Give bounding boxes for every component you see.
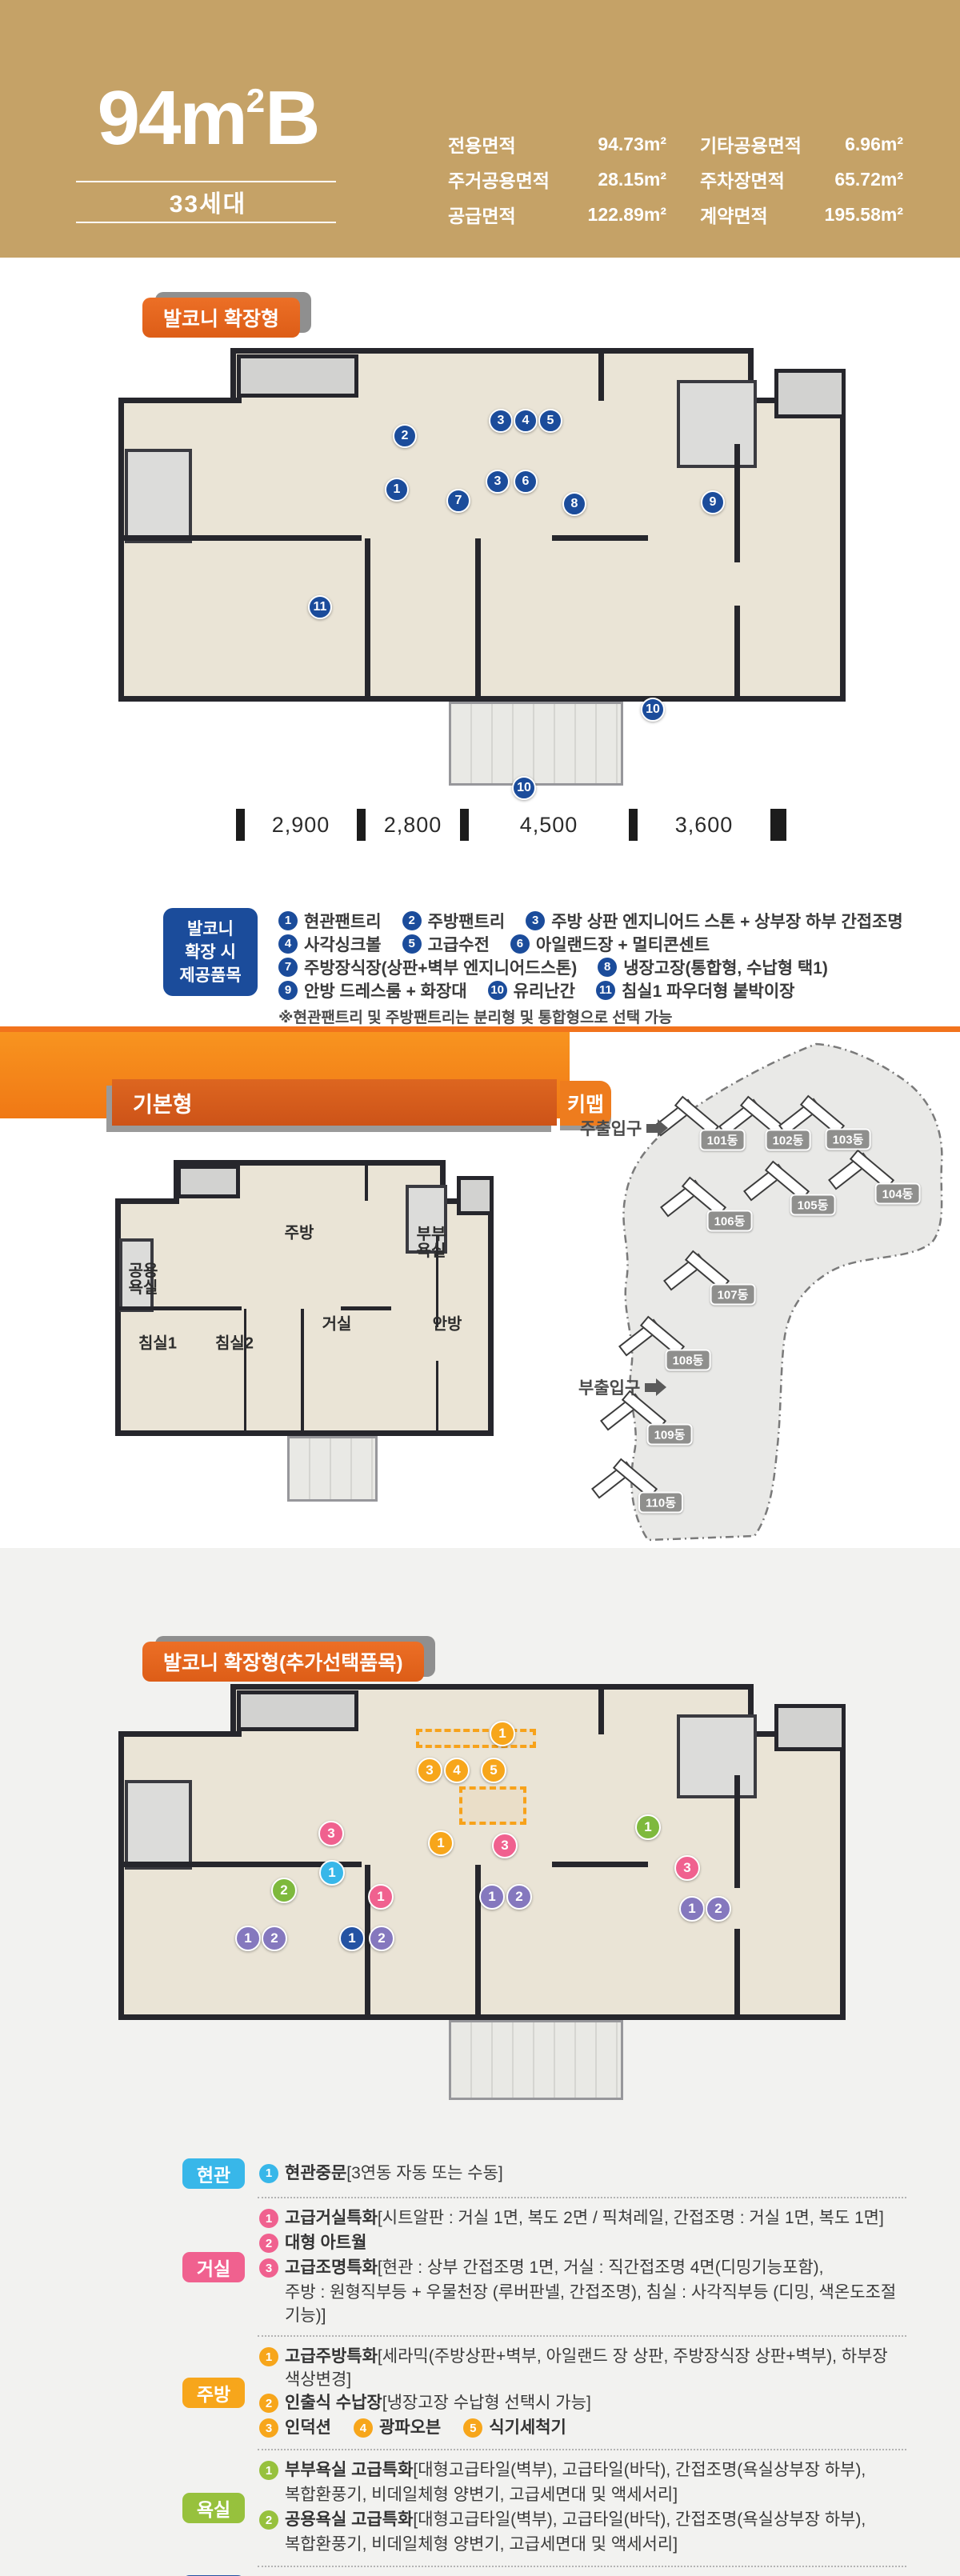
dimension-tick xyxy=(357,809,366,841)
legend-row: 2공용욕실 고급특화[대형고급타일(벽부), 고급타일(바닥), 간접조명(욕실… xyxy=(259,2508,906,2533)
legend-item-text: 부부욕실 고급특화[대형고급타일(벽부), 고급타일(바닥), 간접조명(욕실상… xyxy=(285,2458,866,2482)
provision-number-badge: 10 xyxy=(488,981,507,1000)
sub-entrance-label: 부출입구 xyxy=(578,1375,666,1399)
area-label: 주거공용면적 xyxy=(448,166,566,193)
entrance-arrow-icon xyxy=(646,1124,658,1133)
plan-wall xyxy=(475,538,481,697)
room-label-master: 안방 xyxy=(433,1317,462,1334)
area-value: 28.15m² xyxy=(566,169,666,190)
plan-option-marker: 1 xyxy=(679,1896,705,1922)
plan-wall xyxy=(365,538,370,697)
plan-marker: 10 xyxy=(641,698,665,722)
plan-master-bath xyxy=(677,1714,757,1798)
legend-category-pill: 현관 xyxy=(182,2158,245,2189)
legend-item: 2대형 아트월 xyxy=(259,2231,366,2254)
legend-row: 2인출식 수납장[냉장고장 수납형 선택시 가능] xyxy=(259,2391,906,2416)
plan-option-marker: 1 xyxy=(319,1860,345,1886)
provision-item: 2주방팬트리 xyxy=(402,909,506,933)
plan-marker: 4 xyxy=(514,409,538,433)
area-value: 195.58m² xyxy=(814,204,903,226)
plan-option-marker: 2 xyxy=(706,1896,731,1922)
legend-category: 거실 xyxy=(182,2252,259,2282)
provision-number-badge: 9 xyxy=(278,981,298,1000)
plan-marker: 2 xyxy=(393,424,417,448)
provision-number-badge: 2 xyxy=(402,911,422,930)
legend-category: 욕실 xyxy=(182,2493,259,2523)
provision-item-text: 사각싱크볼 xyxy=(304,932,382,956)
plan-wall xyxy=(734,606,740,697)
plan-wall xyxy=(734,444,740,562)
floorplan-optional: 13451312131213121212 xyxy=(104,1684,860,2112)
legend-row: 2대형 아트월 xyxy=(259,2231,906,2256)
legend-separator xyxy=(258,2566,906,2567)
dimension-row: 2,9002,8004,5003,600 xyxy=(236,806,786,843)
plan-wall xyxy=(301,1309,304,1432)
provision-number-badge: 5 xyxy=(402,934,422,954)
title-superscript: 2 xyxy=(246,82,265,119)
plan-wall xyxy=(734,1929,740,2015)
plan-option-marker: 1 xyxy=(635,1814,661,1840)
legend-rows: 1부부욕실 고급특화[대형고급타일(벽부), 고급타일(바닥), 간접조명(욕실… xyxy=(259,2458,906,2558)
provision-note: ※현관팬트리 및 주방팬트리는 분리형 및 통합형으로 선택 가능 xyxy=(278,1006,902,1027)
floorplan-extended: 2345136789111010 xyxy=(104,348,860,796)
building-number-badge: 108동 xyxy=(666,1350,711,1371)
tag-label: 발코니 확장형(추가선택품목) xyxy=(142,1642,424,1682)
basic-tag-label: 기본형 xyxy=(133,1087,193,1118)
provision-item-text: 주방팬트리 xyxy=(428,909,506,933)
provision-item-text: 유리난간 xyxy=(514,978,575,1002)
plan-option-marker: 2 xyxy=(262,1926,287,1951)
legend-category: 현관 xyxy=(182,2158,259,2189)
legend-item-text: 고급거실특화[시트알판 : 거실 1면, 복도 2면 / 픽쳐레일, 간접조명 … xyxy=(285,2206,884,2230)
legend-item-text: 광파오븐 xyxy=(379,2416,441,2439)
plan-wall xyxy=(552,535,648,541)
legend-category-pill: 거실 xyxy=(182,2252,245,2282)
tag-basic-type: 기본형 xyxy=(112,1079,557,1126)
legend-item-text: 공용욕실 고급특화[대형고급타일(벽부), 고급타일(바닥), 간접조명(욕실상… xyxy=(285,2508,866,2531)
provision-item: 8냉장고장(통합형, 수납형 택1) xyxy=(598,955,828,979)
area-value: 6.96m² xyxy=(814,134,903,155)
legend-continuation-text: 복합환풍기, 비데일체형 양변기, 고급세면대 및 액세서리] xyxy=(285,2483,678,2506)
provision-number-badge: 6 xyxy=(510,934,530,954)
dimension-value: 2,900 xyxy=(245,813,357,838)
room-label-living: 거실 xyxy=(322,1317,352,1334)
room-label-master-bath: 부부 욕실 xyxy=(417,1226,446,1260)
dimension-value: 2,800 xyxy=(366,813,460,838)
legend-row: 주방 : 원형직부등 + 우물천장 (루버판넬, 간접조명), 침실 : 사각직… xyxy=(259,2281,906,2327)
plan-wall xyxy=(365,1162,368,1201)
plan-wall xyxy=(123,535,362,541)
legend-item: 3인덕션 xyxy=(259,2416,331,2439)
plan-option-marker: 3 xyxy=(318,1821,344,1846)
area-value: 65.72m² xyxy=(814,169,903,190)
legend-row: 복합환풍기, 비데일체형 양변기, 고급세면대 및 액세서리] xyxy=(259,2533,906,2558)
area-table: 전용면적94.73m²기타공용면적6.96m²주거공용면적28.15m²주차장면… xyxy=(448,126,903,232)
provision-title-box: 발코니 확장 시 제공품목 xyxy=(163,908,258,996)
plan-wall xyxy=(341,1306,390,1310)
provision-item-text: 안방 드레스룸 + 화장대 xyxy=(304,978,467,1002)
building-number-badge: 106동 xyxy=(707,1210,753,1232)
option-legend: 현관1현관중문[3연동 자동 또는 수동]거실1고급거실특화[시트알판 : 거실… xyxy=(182,2154,906,2576)
legend-item: 5식기세척기 xyxy=(463,2416,566,2439)
provision-number-badge: 8 xyxy=(598,958,617,977)
provision-row: 4사각싱크볼5고급수전6아일랜드장 + 멀티콘센트 xyxy=(278,932,902,955)
plan-wall xyxy=(598,1687,604,1734)
legend-rows: 1고급주방특화[세라믹(주방상판+벽부, 아일랜드 장 상판, 주방장식장 상판… xyxy=(259,2345,906,2441)
legend-number-badge: 1 xyxy=(259,2164,278,2183)
legend-row: 3인덕션4광파오븐5식기세척기 xyxy=(259,2416,906,2441)
provision-row: 7주방장식장(상판+벽부 엔지니어드스톤)8냉장고장(통합형, 수납형 택1) xyxy=(278,955,902,978)
plan-stair-block xyxy=(237,354,358,398)
dimension-tick xyxy=(236,809,245,841)
legend-number-badge: 1 xyxy=(259,2461,278,2480)
plan-option-marker: 1 xyxy=(428,1830,454,1856)
provision-item-text: 고급수전 xyxy=(428,932,490,956)
provision-item: 7주방장식장(상판+벽부 엔지니어드스톤) xyxy=(278,955,577,979)
provision-row: 9안방 드레스룸 + 화장대10유리난간11침실1 파우더형 붙박이장 xyxy=(278,978,902,1002)
plan-option-marker: 5 xyxy=(481,1758,506,1783)
unit-type-title: 94m2B xyxy=(48,80,368,157)
kitchen-island-outline xyxy=(459,1786,526,1825)
plan-wall xyxy=(598,351,604,401)
legend-block-주방: 주방1고급주방특화[세라믹(주방상판+벽부, 아일랜드 장 상판, 주방장식장 … xyxy=(182,2340,906,2446)
legend-row: 복합환풍기, 비데일체형 양변기, 고급세면대 및 액세서리] xyxy=(259,2483,906,2508)
area-label: 주차장면적 xyxy=(700,166,814,193)
legend-number-badge: 2 xyxy=(259,2234,278,2253)
building-number-badge: 102동 xyxy=(766,1130,811,1151)
header-band: 94m2B 33세대 전용면적94.73m²기타공용면적6.96m²주거공용면적… xyxy=(0,0,960,258)
dimension-tick xyxy=(460,809,469,841)
legend-item-text: 대형 아트월 xyxy=(285,2231,366,2254)
provision-item: 4사각싱크볼 xyxy=(278,932,382,956)
provision-item-text: 주방장식장(상판+벽부 엔지니어드스톤) xyxy=(304,955,577,979)
room-label-kitchen: 주방 xyxy=(285,1226,314,1242)
legend-number-badge: 1 xyxy=(259,2347,278,2366)
building-number-badge: 103동 xyxy=(826,1129,871,1150)
provision-item-text: 현관팬트리 xyxy=(304,909,382,933)
provision-item: 10유리난간 xyxy=(488,978,575,1002)
provision-item: 3주방 상판 엔지니어드 스톤 + 상부장 하부 간접조명 xyxy=(526,909,903,933)
provision-item-text: 주방 상판 엔지니어드 스톤 + 상부장 하부 간접조명 xyxy=(551,909,903,933)
legend-item: 1현관중문[3연동 자동 또는 수동] xyxy=(259,2162,503,2185)
building-number-badge: 104동 xyxy=(875,1183,921,1205)
dimension-tick xyxy=(629,809,638,841)
plan-option-marker: 1 xyxy=(479,1884,505,1910)
room-label-bedroom1: 침실1 xyxy=(138,1336,177,1353)
area-label: 전용면적 xyxy=(448,130,566,158)
dimension-value: 3,600 xyxy=(638,813,770,838)
legend-number-badge: 2 xyxy=(259,2394,278,2413)
plan-stair-block xyxy=(177,1165,240,1198)
legend-block-침실: 침실1침실2 파우더형 붙박이장 xyxy=(182,2570,906,2576)
provision-item: 6아일랜드장 + 멀티콘센트 xyxy=(510,932,710,956)
legend-category: 주방 xyxy=(182,2378,259,2408)
legend-number-badge: 4 xyxy=(354,2418,373,2438)
legend-number-badge: 1 xyxy=(259,2209,278,2228)
legend-separator xyxy=(258,2335,906,2337)
plan-marker: 3 xyxy=(489,409,513,433)
building-number-badge: 109동 xyxy=(647,1424,693,1446)
plan-marker: 9 xyxy=(701,490,725,514)
household-count: 33세대 xyxy=(48,184,368,219)
plan-option-marker: 2 xyxy=(369,1926,394,1951)
legend-row: 1고급주방특화[세라믹(주방상판+벽부, 아일랜드 장 상판, 주방장식장 상판… xyxy=(259,2345,906,2391)
provision-number-badge: 1 xyxy=(278,911,298,930)
plan-utility-block xyxy=(774,369,846,418)
plan-master-bath xyxy=(677,380,757,468)
legend-number-badge: 2 xyxy=(259,2510,278,2530)
floorplan-basic: 주방 부부 욕실 공용 욕실 침실1 침실2 거실 안방 xyxy=(108,1160,502,1528)
tag-label: 발코니 확장형 xyxy=(142,298,300,338)
title-divider-bottom xyxy=(76,222,336,223)
legend-row: 3고급조명특화[현관 : 상부 간접조명 1면, 거실 : 직간접조명 4면(디… xyxy=(259,2256,906,2281)
provision-item-text: 냉장고장(통합형, 수납형 택1) xyxy=(623,955,828,979)
orange-rule xyxy=(0,1026,960,1032)
plan-option-marker: 3 xyxy=(674,1855,700,1881)
plan-wall xyxy=(118,1306,242,1310)
legend-item: 3고급조명특화[현관 : 상부 간접조명 1면, 거실 : 직간접조명 4면(디… xyxy=(259,2256,823,2279)
legend-block-현관: 현관1현관중문[3연동 자동 또는 수동] xyxy=(182,2154,906,2194)
area-value: 122.89m² xyxy=(566,204,666,226)
legend-number-badge: 5 xyxy=(463,2418,482,2438)
area-label: 기타공용면적 xyxy=(700,130,814,158)
provision-item-list: 1현관팬트리2주방팬트리3주방 상판 엔지니어드 스톤 + 상부장 하부 간접조… xyxy=(278,909,902,1027)
plan-marker: 3 xyxy=(486,470,510,494)
title-suffix: B xyxy=(265,75,318,161)
entrance-arrow-icon xyxy=(645,1383,657,1392)
tag-extended-optional: 발코니 확장형(추가선택품목) xyxy=(142,1642,424,1682)
plan-wall xyxy=(552,1862,648,1867)
plan-marker: 5 xyxy=(538,409,562,433)
plan-balcony xyxy=(287,1436,378,1502)
area-label: 계약면적 xyxy=(700,201,814,228)
plan-option-marker: 1 xyxy=(490,1721,515,1746)
provision-title-line: 확장 시 xyxy=(185,941,236,964)
legend-item: 2인출식 수납장[냉장고장 수납형 선택시 가능] xyxy=(259,2391,591,2414)
provision-item: 11침실1 파우더형 붙박이장 xyxy=(596,978,795,1002)
sub-entrance-text: 부출입구 xyxy=(578,1375,640,1399)
legend-row: 1현관중문[3연동 자동 또는 수동] xyxy=(259,2162,906,2186)
legend-item: 1고급주방특화[세라믹(주방상판+벽부, 아일랜드 장 상판, 주방장식장 상판… xyxy=(259,2345,906,2391)
provision-title-line: 발코니 xyxy=(187,918,234,941)
legend-item-text: 고급주방특화[세라믹(주방상판+벽부, 아일랜드 장 상판, 주방장식장 상판+… xyxy=(285,2345,906,2391)
plan-option-marker: 2 xyxy=(506,1884,532,1910)
provision-item: 5고급수전 xyxy=(402,932,490,956)
entrance-arrow-icon xyxy=(658,1119,668,1137)
plan-stair-block xyxy=(237,1690,358,1731)
plan-marker: 11 xyxy=(308,595,332,619)
dimension-tick-end xyxy=(770,809,786,841)
dimension-value: 4,500 xyxy=(469,813,629,838)
legend-item-text: 현관중문[3연동 자동 또는 수동] xyxy=(285,2162,503,2185)
plan-marker: 6 xyxy=(514,470,538,494)
site-keymap: 주출입구 부출입구 101동102동103동104동105동106동107동10… xyxy=(572,1036,960,1548)
legend-category-pill: 욕실 xyxy=(182,2493,245,2523)
plan-common-bath xyxy=(125,1780,192,1870)
title-divider-top xyxy=(76,181,336,182)
plan-marker: 8 xyxy=(562,492,586,516)
plan-utility-block xyxy=(774,1704,846,1751)
plan-common-bath xyxy=(125,449,192,543)
plan-wall xyxy=(244,1309,247,1432)
legend-row: 1고급거실특화[시트알판 : 거실 1면, 복도 2면 / 픽쳐레일, 간접조명… xyxy=(259,2206,906,2231)
building-number-badge: 105동 xyxy=(790,1194,836,1216)
main-entrance-label: 주출입구 xyxy=(580,1116,668,1140)
tag-extended-balcony: 발코니 확장형 xyxy=(142,298,300,338)
legend-block-욕실: 욕실1부부욕실 고급특화[대형고급타일(벽부), 고급타일(바닥), 간접조명(… xyxy=(182,2454,906,2562)
legend-continuation-text: 복합환풍기, 비데일체형 양변기, 고급세면대 및 액세서리] xyxy=(285,2533,678,2556)
provision-item-text: 침실1 파우더형 붙박이장 xyxy=(622,978,795,1002)
provision-item: 1현관팬트리 xyxy=(278,909,382,933)
plan-marker: 10 xyxy=(512,776,536,800)
legend-rows: 1고급거실특화[시트알판 : 거실 1면, 복도 2면 / 픽쳐레일, 간접조명… xyxy=(259,2206,906,2327)
plan-balcony xyxy=(449,2020,623,2100)
provision-row: 1현관팬트리2주방팬트리3주방 상판 엔지니어드 스톤 + 상부장 하부 간접조… xyxy=(278,909,902,932)
keymap-tag-label: 키맵 xyxy=(567,1089,604,1118)
provision-number-badge: 3 xyxy=(526,911,545,930)
provision-number-badge: 7 xyxy=(278,958,298,977)
legend-number-badge: 3 xyxy=(259,2418,278,2438)
entrance-arrow-icon xyxy=(656,1378,666,1396)
legend-continuation-text: 주방 : 원형직부등 + 우물천장 (루버판넬, 간접조명), 침실 : 사각직… xyxy=(285,2281,906,2327)
legend-item: 1고급거실특화[시트알판 : 거실 1면, 복도 2면 / 픽쳐레일, 간접조명… xyxy=(259,2206,884,2230)
plan-wall xyxy=(436,1361,439,1432)
provision-item: 9안방 드레스룸 + 화장대 xyxy=(278,978,467,1002)
kitchen-counter-outline xyxy=(416,1729,536,1748)
plan-option-marker: 1 xyxy=(368,1884,394,1910)
plan-marker: 7 xyxy=(446,489,470,513)
provision-item-text: 아일랜드장 + 멀티콘센트 xyxy=(536,932,710,956)
legend-rows: 1현관중문[3연동 자동 또는 수동] xyxy=(259,2162,906,2186)
provision-number-badge: 11 xyxy=(596,981,615,1000)
plan-option-marker: 2 xyxy=(271,1878,297,1903)
plan-option-marker: 1 xyxy=(339,1926,365,1951)
legend-category-pill: 주방 xyxy=(182,2378,245,2408)
legend-row: 1부부욕실 고급특화[대형고급타일(벽부), 고급타일(바닥), 간접조명(욕실… xyxy=(259,2458,906,2483)
plan-utility-block xyxy=(457,1176,494,1214)
plan-option-marker: 4 xyxy=(444,1758,470,1783)
legend-item: 2공용욕실 고급특화[대형고급타일(벽부), 고급타일(바닥), 간접조명(욕실… xyxy=(259,2508,866,2531)
building-number-badge: 110동 xyxy=(638,1492,683,1514)
plan-wall xyxy=(734,1775,740,1888)
plan-wall xyxy=(475,1865,481,2015)
plan-option-marker: 3 xyxy=(417,1758,442,1783)
legend-separator xyxy=(258,2449,906,2450)
main-entrance-text: 주출입구 xyxy=(580,1116,642,1140)
legend-block-거실: 거실1고급거실특화[시트알판 : 거실 1면, 복도 2면 / 픽쳐레일, 간접… xyxy=(182,2202,906,2332)
building-number-badge: 101동 xyxy=(700,1130,746,1151)
legend-number-badge: 3 xyxy=(259,2258,278,2278)
area-label: 공급면적 xyxy=(448,201,566,228)
legend-item-text: 식기세척기 xyxy=(489,2416,566,2439)
legend-item-text: 인출식 수납장[냉장고장 수납형 선택시 가능] xyxy=(285,2391,591,2414)
plan-balcony xyxy=(449,702,623,786)
plan-option-marker: 3 xyxy=(492,1833,518,1858)
legend-item: 1부부욕실 고급특화[대형고급타일(벽부), 고급타일(바닥), 간접조명(욕실… xyxy=(259,2458,866,2482)
plan-marker: 1 xyxy=(385,478,409,502)
provision-title-line: 제공품목 xyxy=(179,964,241,987)
title-main: 94m xyxy=(98,75,246,161)
room-label-common-bath: 공용 욕실 xyxy=(129,1263,158,1297)
room-label-bedroom2: 침실2 xyxy=(215,1336,254,1353)
legend-item: 4광파오븐 xyxy=(354,2416,441,2439)
brochure-page: 94m2B 33세대 전용면적94.73m²기타공용면적6.96m²주거공용면적… xyxy=(0,0,960,2576)
plan-option-marker: 1 xyxy=(235,1926,261,1951)
legend-separator xyxy=(258,2197,906,2198)
area-value: 94.73m² xyxy=(566,134,666,155)
legend-item-text: 인덕션 xyxy=(285,2416,331,2439)
provision-number-badge: 4 xyxy=(278,934,298,954)
building-number-badge: 107동 xyxy=(710,1284,756,1306)
legend-item-text: 고급조명특화[현관 : 상부 간접조명 1면, 거실 : 직간접조명 4면(디밍… xyxy=(285,2256,823,2279)
